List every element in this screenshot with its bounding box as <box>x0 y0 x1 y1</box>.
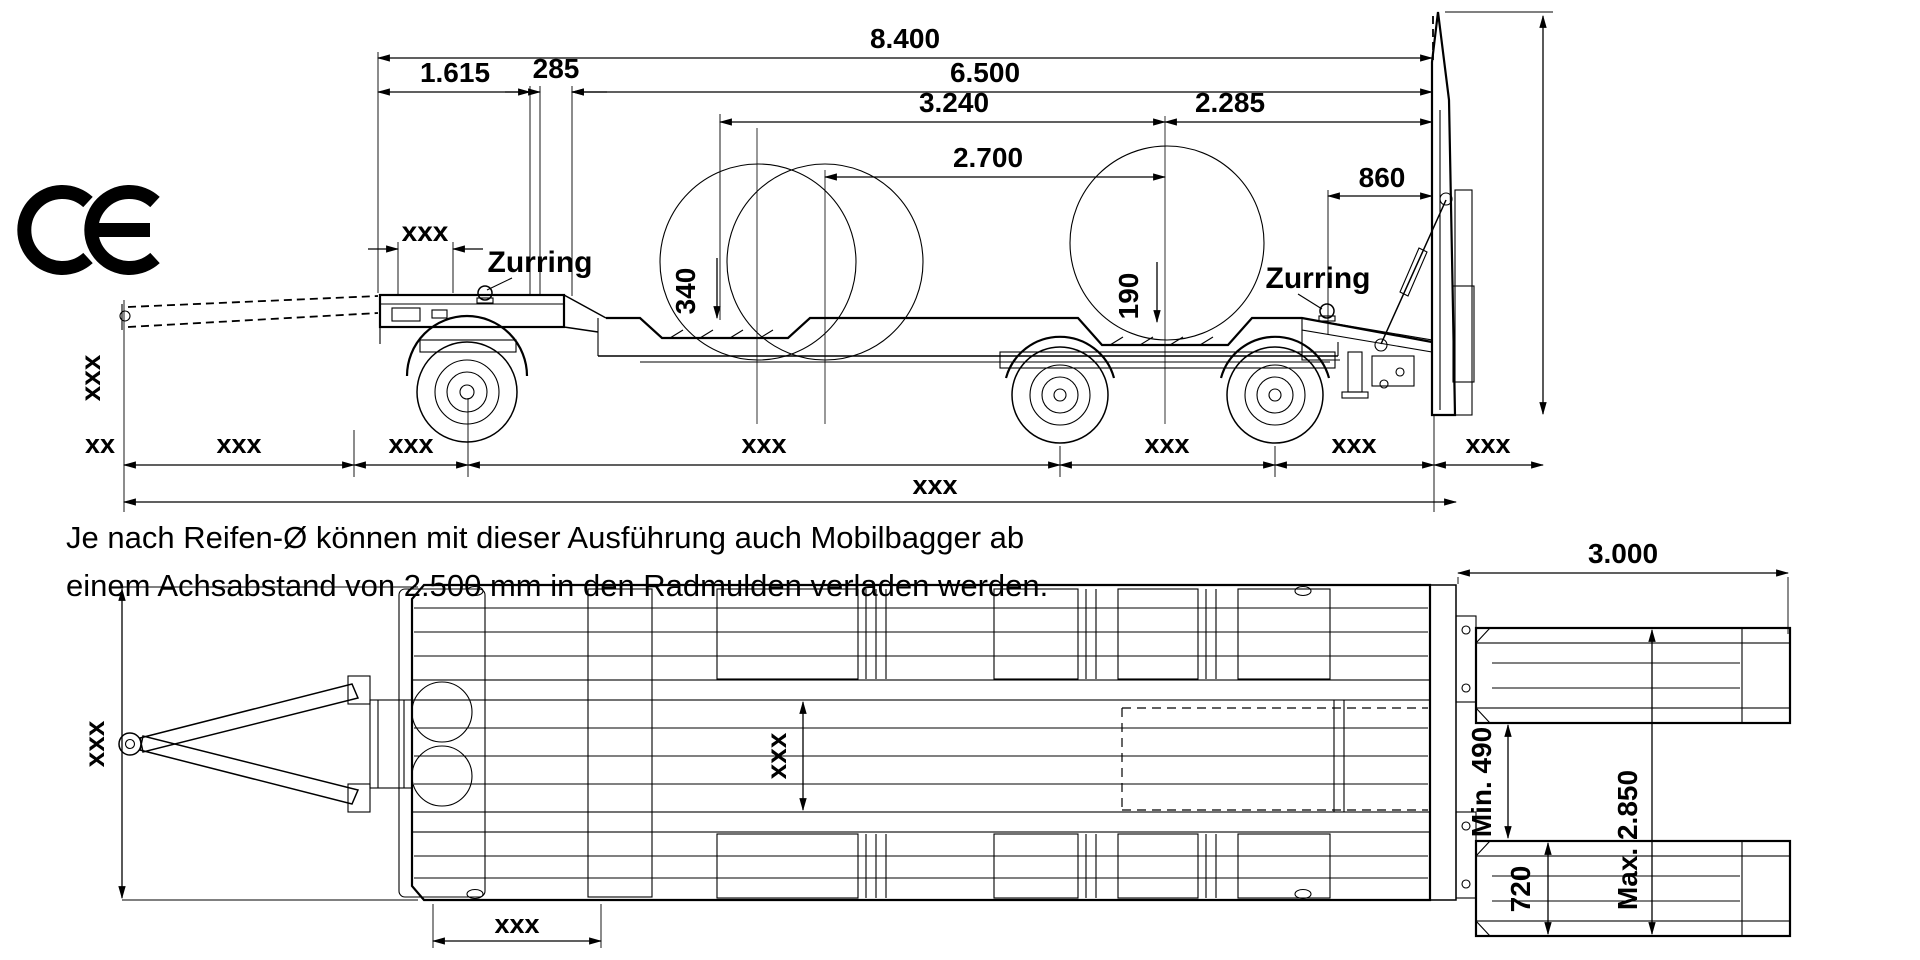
front-wheel <box>407 316 527 442</box>
dim-190-label: 190 <box>1113 273 1144 320</box>
bottom-dim-2: xxx <box>388 429 433 459</box>
note-line-1: Je nach Reifen-Ø können mit dieser Ausfü… <box>66 520 1024 555</box>
dim-ramp-length-label: 3.000 <box>1588 538 1658 569</box>
bottom-dim-4: xxx <box>1144 429 1189 459</box>
dim-ramp-width-label: 720 <box>1505 866 1536 913</box>
mulde-cross-band <box>588 589 652 897</box>
bottom-dim-1: xxx <box>216 429 261 459</box>
dim-overall-label: xxx <box>912 470 957 500</box>
dim-ramp-height-label: xxx <box>75 354 106 401</box>
ramp-upright <box>1432 12 1474 415</box>
mulde-rail-bottom <box>412 812 1430 832</box>
zurring-front-label: Zurring <box>488 246 593 279</box>
dim-front-overhang-label: xxx <box>402 216 449 247</box>
bottom-dim-5: xxx <box>1331 429 1376 459</box>
side-view-dimensions: 8.400 6.500 1.615 285 3.240 2.285 2.700 … <box>75 12 1553 512</box>
dashed-option-outline <box>1122 708 1428 810</box>
side-view-trailer <box>120 12 1474 443</box>
dim-overall-width-label: xxx <box>79 720 110 767</box>
bottom-dim-6: xxx <box>1465 429 1510 459</box>
top-view-trailer <box>119 585 1790 936</box>
dim-max-spread-label: Max. 2.850 <box>1612 770 1643 910</box>
dim-285-label: 285 <box>533 53 580 84</box>
rear-crossmember <box>1430 585 1456 900</box>
loading-ramp-upper <box>1476 628 1790 723</box>
bottom-dim-3: xxx <box>741 429 786 459</box>
dim-inner-width-label: xxx <box>761 732 792 779</box>
mulde-rail-top <box>412 680 1430 700</box>
tandem-wheels <box>1000 337 1335 443</box>
ce-mark-icon <box>24 192 155 268</box>
bed-profile <box>598 318 1432 362</box>
deck-lashing-ovals <box>467 587 1311 899</box>
wheel-recess-blocks <box>717 589 1330 898</box>
trailer-dimension-drawing: 8.400 6.500 1.615 285 3.240 2.285 2.700 … <box>0 0 1920 960</box>
zurring-rear-label: Zurring <box>1266 262 1371 295</box>
dim-2285-label: 2.285 <box>1195 87 1265 118</box>
technical-drawing-page: 8.400 6.500 1.615 285 3.240 2.285 2.700 … <box>0 0 1920 960</box>
dim-3240-label: 3.240 <box>919 87 989 118</box>
dim-340-label: 340 <box>670 268 701 315</box>
lashing-ring-rear-icon <box>1319 304 1335 321</box>
load-wheel-circles <box>660 146 1264 360</box>
dim-min-clearance-label: Min. 490 <box>1466 727 1497 837</box>
dim-2700-label: 2.700 <box>953 142 1023 173</box>
dim-mulde-length-label: xxx <box>494 909 539 939</box>
dim-1615-label: 1.615 <box>420 57 490 88</box>
dim-8400-label: 8.400 <box>870 23 940 54</box>
dim-6500-label: 6.500 <box>950 57 1020 88</box>
bottom-dim-0: xx <box>85 429 115 459</box>
drawbar-plan <box>119 676 412 812</box>
drawbar-dashed <box>120 296 378 330</box>
dim-860-label: 860 <box>1359 162 1406 193</box>
note-text: Je nach Reifen-Ø können mit dieser Ausfü… <box>66 520 1048 603</box>
